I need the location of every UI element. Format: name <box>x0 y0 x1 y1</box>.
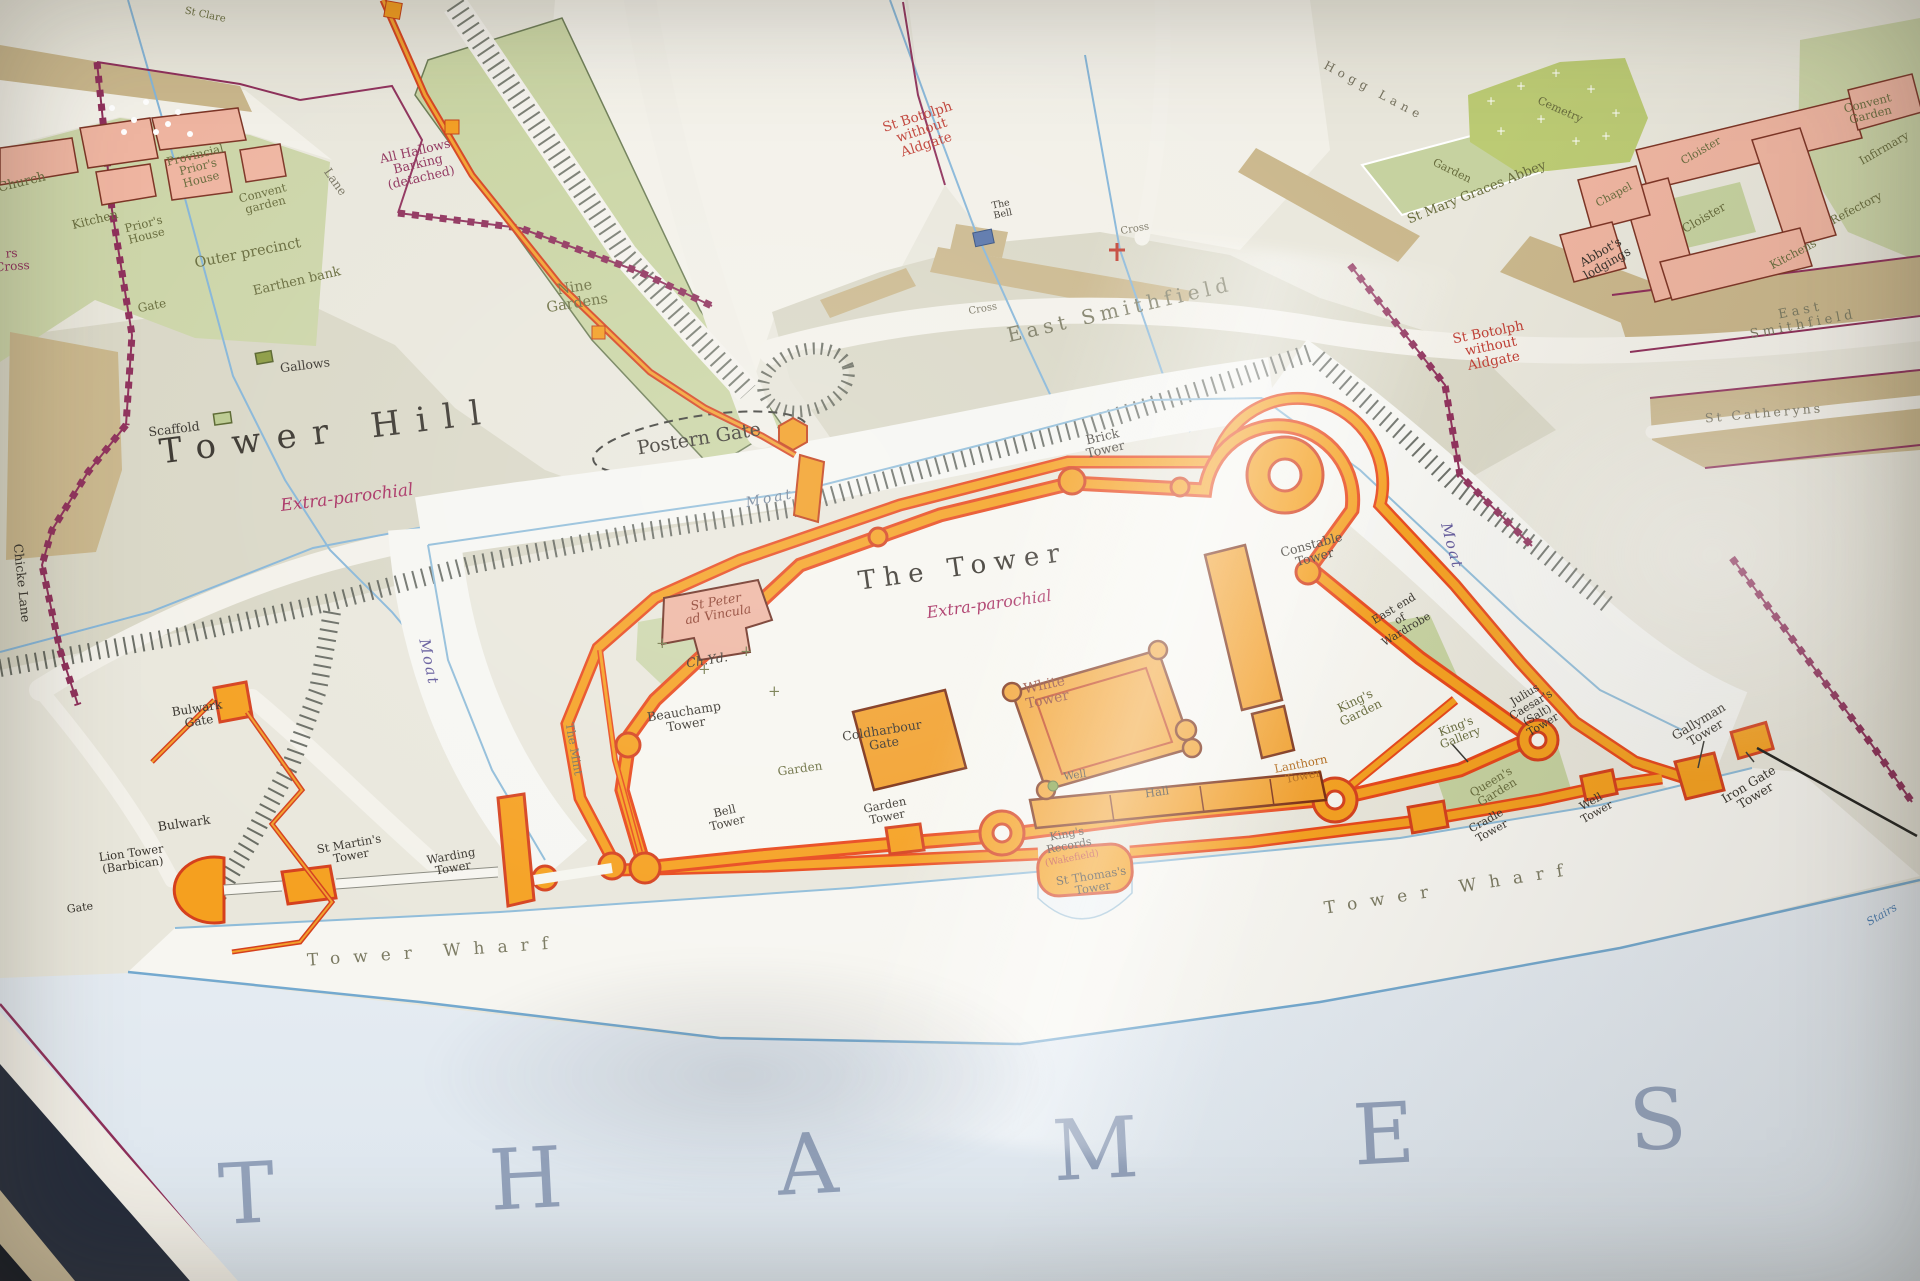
svg-text:+: + <box>1601 129 1611 143</box>
bulwark-gate-shape <box>214 682 252 722</box>
svg-text:+: + <box>1611 106 1621 120</box>
svg-text:+: + <box>698 660 711 678</box>
well-tower-shape <box>1581 770 1617 800</box>
map-photo: ++ ++ +++ +++ +++ ChurchKitchenPrior's H… <box>0 0 1920 1281</box>
beauchamp-tower-shape <box>616 733 640 757</box>
bell-tower-shape <box>630 853 660 883</box>
svg-text:+: + <box>768 682 781 700</box>
svg-text:+: + <box>1536 112 1546 126</box>
svg-text:+: + <box>1586 82 1596 96</box>
svg-text:+: + <box>1571 134 1581 148</box>
st-thomas-tower-shape <box>1036 843 1133 897</box>
svg-text:+: + <box>1516 79 1526 93</box>
map-artwork: ++ ++ +++ +++ +++ <box>0 0 1920 1281</box>
svg-text:+: + <box>740 642 753 660</box>
constable-tower-shape <box>1296 560 1320 584</box>
well-marker <box>1048 781 1058 791</box>
cradle-tower-shape <box>1408 801 1448 833</box>
svg-text:+: + <box>1496 124 1506 138</box>
garden-tower-shape <box>886 824 924 854</box>
svg-text:+: + <box>1486 94 1496 108</box>
svg-text:+: + <box>1551 66 1561 80</box>
brick-tower-shape <box>1059 468 1085 494</box>
postern-gate-tower <box>779 418 807 450</box>
svg-text:+: + <box>656 634 669 652</box>
scaffold-marker <box>213 412 231 425</box>
gallows-marker <box>255 351 273 365</box>
